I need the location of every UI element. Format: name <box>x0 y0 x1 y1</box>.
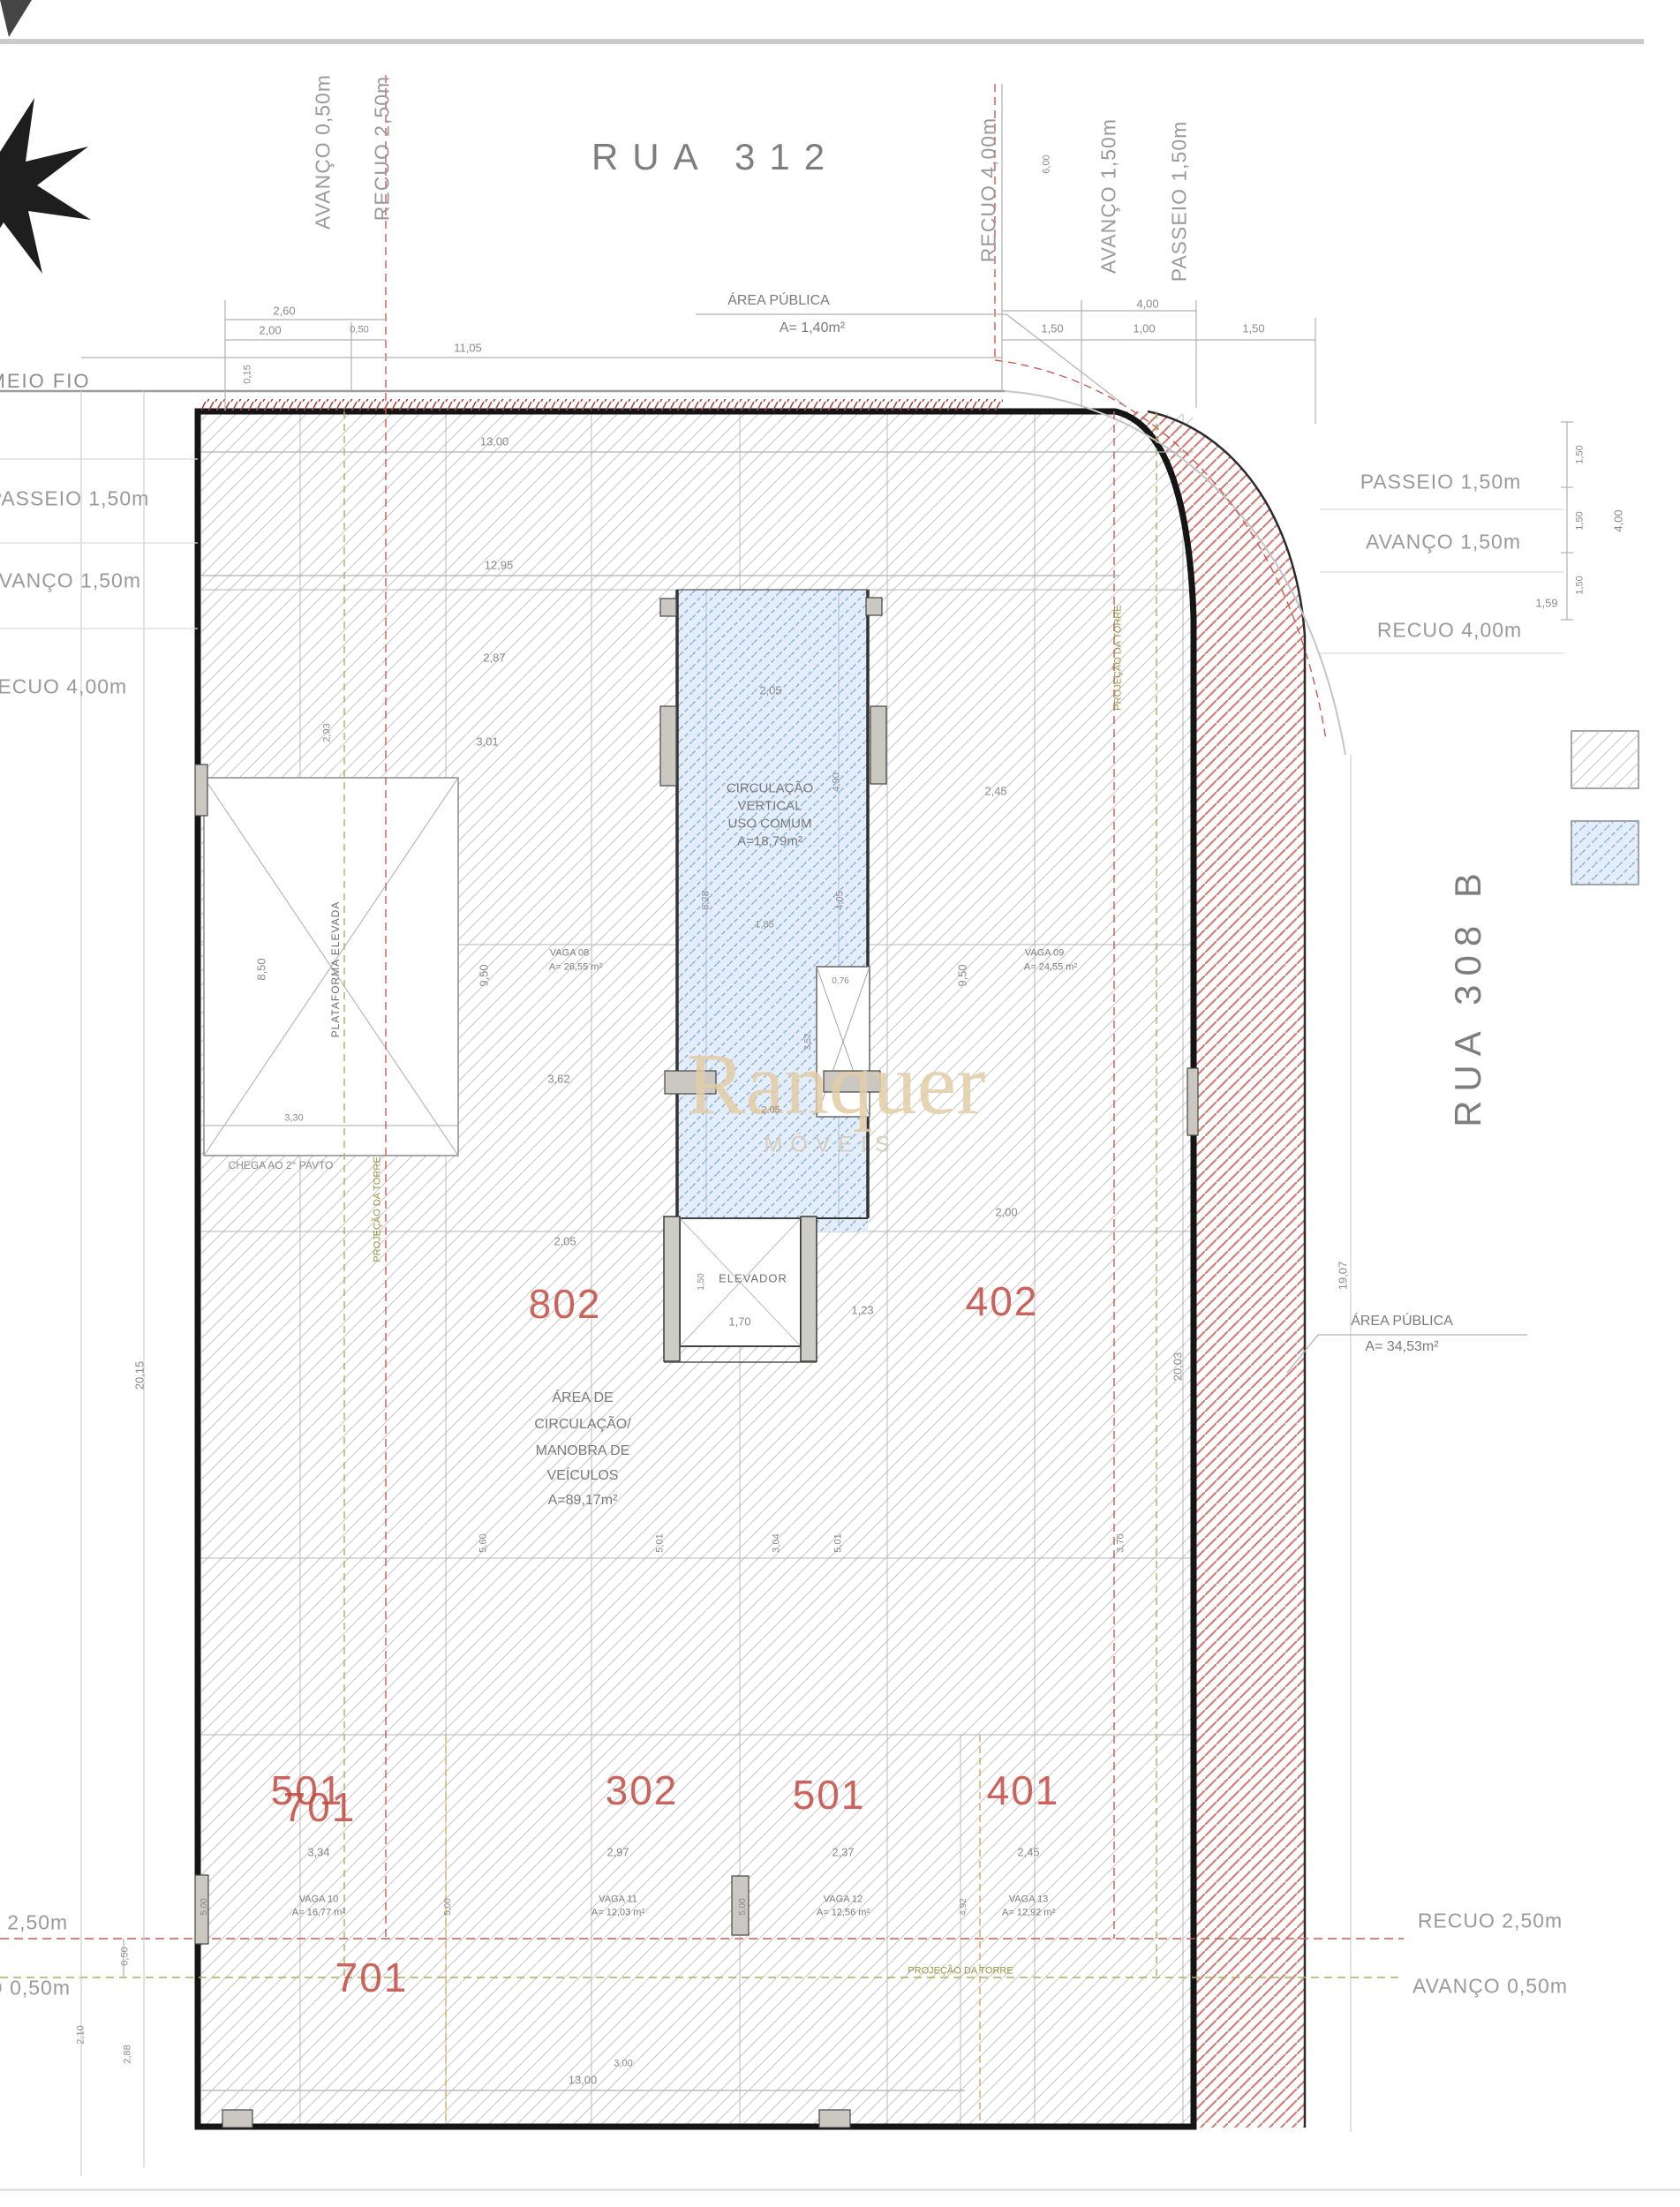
area-manobra-l3: MANOBRA DE <box>536 1444 630 1458</box>
dim-label: 5,60 <box>479 1533 489 1552</box>
dim-label: 13,00 <box>569 2075 598 2086</box>
setback-recuo-250-top: RECUO 2,50m <box>373 76 393 221</box>
vaga-09-area: A= 24,55 m² <box>1024 963 1077 973</box>
circ-vertical-l2: VERTICAL <box>737 800 802 813</box>
dim-label: 3,62 <box>547 1073 569 1085</box>
legend-gray-hatch-swatch <box>1571 731 1639 788</box>
dim-label: 3,00 <box>614 2060 632 2069</box>
dim-label: 1,23 <box>851 1305 873 1316</box>
dim-label: 5,00 <box>200 1898 209 1915</box>
dim-label: 2,05 <box>761 1106 780 1116</box>
scan-edge-line <box>0 39 1644 44</box>
compass-north-icon <box>0 98 91 276</box>
vaga-10-area: A= 16,77 m² <box>292 1909 345 1918</box>
unit-701: 701 <box>335 1957 409 1998</box>
legend <box>1571 731 1639 885</box>
platform-note: CHEGA AO 2° PAVTO <box>229 1160 334 1171</box>
tower-projection-left: PROJEÇÃO DA TORRE <box>373 1156 383 1262</box>
dim-label: 3,01 <box>476 736 498 748</box>
dim-label: 6,00 <box>1043 154 1052 173</box>
vaga-08-name: VAGA 08 <box>550 949 589 959</box>
unit-501: 501 <box>793 1774 866 1815</box>
dim-label: 2,93 <box>323 723 333 742</box>
dim-label: 3,30 <box>284 1114 303 1124</box>
dim-label: 5,01 <box>834 1533 844 1552</box>
dim-label: 2,05 <box>759 685 781 697</box>
dim-label: 2,45 <box>984 786 1006 797</box>
dim-label: 2,97 <box>606 1847 629 1858</box>
corner-smudge <box>0 0 32 37</box>
curb-label: MEIO FIO <box>0 372 91 391</box>
dim-label: 3,34 <box>307 1847 329 1858</box>
dim-label: 1,85 <box>755 921 773 930</box>
dim-label: 2,00 <box>995 1207 1017 1218</box>
vaga-13-area: A= 12,92 m² <box>1002 1909 1055 1918</box>
watermark-logo: Ranquer <box>687 1040 986 1128</box>
dim-label: 2,05 <box>554 1236 576 1247</box>
dim-label: 4,05 <box>836 891 846 909</box>
unit-401: 401 <box>987 1770 1060 1811</box>
elevator-shaft <box>664 1216 817 1362</box>
dim-label: 0,50 <box>121 1947 131 1965</box>
dim-label: 1,50 <box>1041 323 1063 335</box>
dim-label: 19,07 <box>1337 1262 1349 1291</box>
vaga-11-name: VAGA 11 <box>599 1895 637 1905</box>
curb-tick-hatch <box>201 399 1003 411</box>
dim-label: 2,87 <box>483 652 505 664</box>
dim-label: 11,05 <box>454 343 482 354</box>
dim-label: 3,70 <box>1117 1533 1126 1552</box>
dim-label: 3,52 <box>804 1033 813 1050</box>
setback-recuo-250-left-bottom: RECUO 2,50m <box>0 1913 68 1933</box>
setback-avanco-left: AVANÇO 1,50m <box>0 571 141 591</box>
dim-label: 8,28 <box>702 891 712 909</box>
scan-bottom-line <box>0 2188 1680 2191</box>
platform-label: PLATAFORMA ELEVADA <box>330 901 341 1038</box>
area-manobra-l5: A=89,17m² <box>548 1494 618 1508</box>
dim-label: 9,50 <box>957 964 968 986</box>
dim-label: 2,37 <box>832 1847 854 1858</box>
vaga-12-name: VAGA 12 <box>824 1895 863 1905</box>
vaga-08-area: A= 26,55 m² <box>549 963 602 973</box>
setback-avanco-050-left-bottom: AVANÇO 0,50m <box>0 1978 71 1999</box>
dim-label: 12,95 <box>485 560 514 571</box>
setback-avanco-right: AVANÇO 1,50m <box>1366 532 1521 553</box>
dim-label: 1,50 <box>1576 511 1586 530</box>
setback-avanco-050-top: AVANÇO 0,50m <box>313 74 334 230</box>
area-publica-right-title: ÁREA PÚBLICA <box>1351 1314 1453 1329</box>
vaga-10-name: VAGA 10 <box>299 1895 338 1905</box>
area-manobra-l4: VEÍCULOS <box>547 1469 619 1483</box>
area-manobra-l1: ÁREA DE <box>552 1391 613 1405</box>
circ-vertical-l1: CIRCULAÇÃO <box>727 782 813 795</box>
dim-label: 2,10 <box>77 2025 87 2044</box>
setback-passeio-right: PASSEIO 1,50m <box>1360 472 1522 493</box>
site-plan-page: RUA 312 RUA 308 B MEIO FIO Ranquer MÓVEI… <box>0 0 1680 2207</box>
dim-label: 20,15 <box>134 1361 146 1390</box>
setback-avanco-150-top: AVANÇO 1,50m <box>1099 118 1119 274</box>
dim-label: 1,50 <box>1576 576 1586 594</box>
dim-label: 1,50 <box>1576 445 1586 463</box>
dim-label: 2,45 <box>1017 1847 1039 1858</box>
dim-label: 5,00 <box>739 1898 748 1915</box>
area-manobra-l2: CIRCULAÇÃO/ <box>534 1418 630 1432</box>
dim-label: 0,50 <box>350 326 368 335</box>
dim-label: 4,90 <box>832 772 842 791</box>
vaga-11-area: A= 12,03 m² <box>591 1909 644 1918</box>
setback-recuo-250-right-bottom: RECUO 2,50m <box>1418 1911 1563 1932</box>
street-name-top: RUA 312 <box>591 139 839 176</box>
vaga-12-area: A= 12,56 m² <box>817 1909 870 1918</box>
unit-302: 302 <box>606 1770 679 1811</box>
dim-label: 4,00 <box>1613 509 1624 531</box>
dim-label: 1,70 <box>728 1316 750 1328</box>
circ-vertical-l3: USO COMUM <box>728 817 812 831</box>
dim-label: 0,15 <box>244 365 253 383</box>
street-name-right: RUA 308 B <box>1450 864 1487 1127</box>
dim-label: 1,50 <box>1242 323 1264 335</box>
circ-vertical-l4: A=18,79m² <box>737 835 802 848</box>
setback-avanco-050-right-bottom: AVANÇO 0,50m <box>1413 1977 1568 1997</box>
dim-label: 5,01 <box>656 1533 666 1552</box>
unit-701-overlap: 701 <box>283 1787 357 1827</box>
area-publica-top-value: A= 1,40m² <box>780 321 845 335</box>
dim-label: 13,00 <box>480 436 509 448</box>
dim-label: 2,00 <box>259 325 281 336</box>
legend-blue-hatch-swatch <box>1571 821 1639 885</box>
dim-label: 20,03 <box>1172 1352 1184 1382</box>
setback-recuo-right: RECUO 4,00m <box>1377 621 1522 641</box>
area-publica-top-title: ÁREA PÚBLICA <box>727 294 830 308</box>
dim-label: 0,76 <box>832 977 848 986</box>
tower-projection-right: PROJEÇÃO DA TORRE <box>1114 605 1124 710</box>
vaga-13-name: VAGA 13 <box>1009 1895 1048 1905</box>
unit-802: 802 <box>529 1284 602 1324</box>
setback-recuo-left: RECUO 4,00m <box>0 677 127 697</box>
dim-label: 2,88 <box>124 2045 133 2063</box>
dim-label: 8,50 <box>256 958 267 980</box>
dim-label: 1,59 <box>1535 598 1557 609</box>
elevator-label: ELEVADOR <box>719 1273 787 1284</box>
tower-projection-bottom: PROJEÇÃO DA TORRE <box>908 1967 1013 1977</box>
dim-label: 5,00 <box>444 1898 453 1915</box>
area-publica-right-value: A= 34,53m² <box>1365 1340 1438 1354</box>
setback-passeio-left: PASSEIO 1,50m <box>0 489 149 509</box>
watermark-subtitle: MÓVEIS <box>764 1134 897 1156</box>
dim-label: 4,00 <box>1136 298 1158 310</box>
dim-label: 9,50 <box>478 964 490 986</box>
dim-label: 4,92 <box>960 1898 968 1915</box>
setback-passeio-150-top: PASSEIO 1,50m <box>1170 121 1190 282</box>
setback-recuo-400-top: RECUO 4,00m <box>979 117 999 262</box>
dim-label: 2,60 <box>273 305 295 317</box>
vaga-09-name: VAGA 09 <box>1025 949 1064 959</box>
dim-label: 1,00 <box>1133 323 1155 335</box>
dim-label: 3,04 <box>772 1533 782 1552</box>
dim-label: 1,50 <box>697 1273 706 1290</box>
unit-402: 402 <box>966 1281 1039 1322</box>
